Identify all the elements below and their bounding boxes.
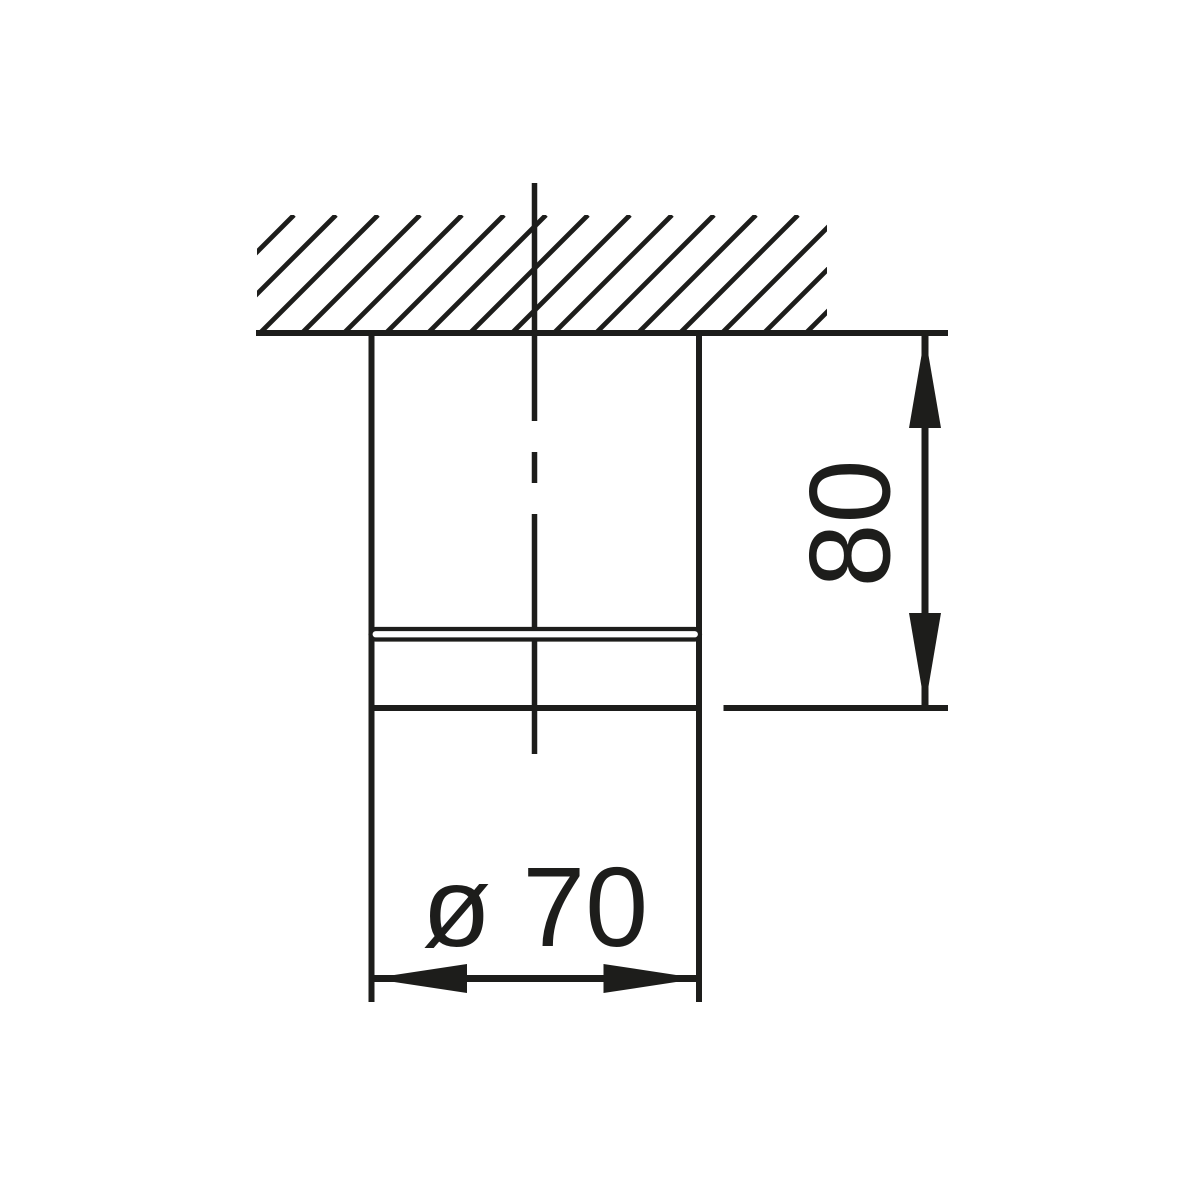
svg-text:80: 80 (787, 460, 915, 588)
svg-text:ø 70: ø 70 (422, 844, 648, 970)
